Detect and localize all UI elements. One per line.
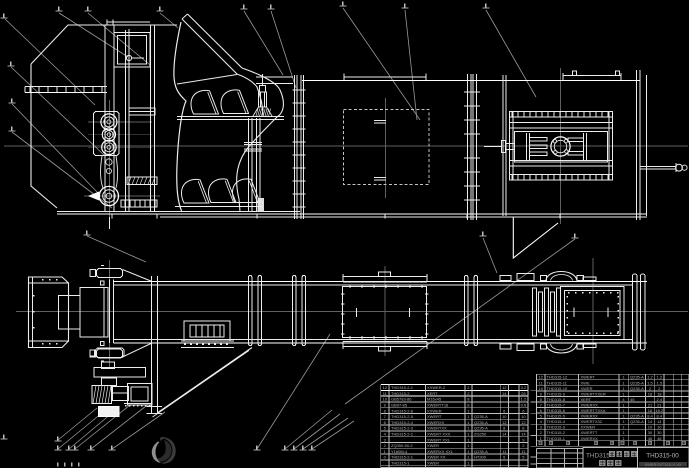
- svg-text:THD315-5: THD315-5: [547, 414, 566, 419]
- svg-text:28: 28: [521, 391, 526, 396]
- svg-text:14: 14: [657, 419, 662, 424]
- svg-text:10: 10: [538, 386, 543, 391]
- svg-text:XWERT XXX: XWERT XXX: [427, 432, 451, 437]
- svg-text:XERT: XERT: [427, 391, 438, 396]
- svg-text:8.4: 8.4: [657, 414, 663, 419]
- svg-text:ZG250: ZG250: [474, 432, 487, 437]
- svg-text:ZQ350-50-2: ZQ350-50-2: [391, 443, 413, 448]
- svg-text:XXWER: XXWER: [427, 408, 442, 413]
- svg-text:1.2: 1.2: [521, 397, 527, 402]
- svg-text:18: 18: [657, 391, 662, 396]
- svg-text:XWERXX: XWERXX: [427, 420, 445, 425]
- svg-text:12: 12: [383, 385, 388, 390]
- svg-text:16: 16: [648, 408, 653, 413]
- svg-text:M16x45: M16x45: [427, 397, 442, 402]
- svg-text:14: 14: [502, 432, 507, 437]
- svg-text:XWER: XWER: [427, 443, 439, 448]
- svg-text:XWE: XWE: [581, 380, 590, 385]
- svg-text:14: 14: [648, 419, 653, 424]
- svg-text:18: 18: [648, 391, 653, 396]
- svg-text:THD315-3: THD315-3: [547, 425, 566, 430]
- svg-text:XWER XX: XWER XX: [427, 455, 446, 460]
- svg-text:2.4: 2.4: [657, 397, 663, 402]
- svg-text:GB97-85: GB97-85: [391, 403, 408, 408]
- svg-text:XERT: XERT: [581, 397, 592, 402]
- svg-text:THD315-7: THD315-7: [547, 402, 566, 407]
- svg-text:THD315-4: THD315-4: [547, 419, 566, 424]
- svg-text:10: 10: [657, 425, 662, 430]
- svg-text:THD315-12: THD315-12: [547, 375, 568, 380]
- svg-text:10: 10: [521, 414, 526, 419]
- svg-text:10: 10: [502, 414, 507, 419]
- svg-text:21: 21: [657, 402, 662, 407]
- svg-text:12: 12: [538, 375, 543, 380]
- svg-text:16.2: 16.2: [655, 408, 664, 413]
- svg-text:THD315-2-5: THD315-2-5: [391, 414, 414, 419]
- svg-text:Q235-A: Q235-A: [630, 414, 644, 419]
- svg-text:Q235-A: Q235-A: [630, 386, 644, 391]
- svg-text:XWERXX XXL: XWERXX XXL: [427, 449, 454, 454]
- svg-text:XWERT: XWERT: [581, 375, 596, 380]
- svg-text:XWERXX: XWERXX: [581, 414, 599, 419]
- svg-text:XWERTXXER: XWERTXXER: [581, 391, 606, 396]
- svg-text:THD315-11: THD315-11: [547, 380, 568, 385]
- svg-text:46: 46: [648, 436, 653, 441]
- svg-text:THD315-2-6: THD315-2-6: [391, 408, 414, 413]
- svg-text:XWER: XWER: [427, 461, 439, 466]
- svg-text:THD315-2: THD315-2: [391, 391, 410, 396]
- svg-text:THD315-8: THD315-8: [547, 397, 566, 402]
- svg-text:XWERXX: XWERXX: [581, 402, 599, 407]
- svg-text:XWERT: XWERT: [427, 414, 442, 419]
- svg-text:THD315-2: THD315-2: [547, 430, 566, 435]
- svg-text:THD315-6: THD315-6: [547, 408, 566, 413]
- svg-text:THD315-10: THD315-10: [547, 386, 568, 391]
- svg-text:XWERTT16: XWERTT16: [427, 403, 449, 408]
- svg-text:XWER: XWER: [581, 386, 593, 391]
- svg-text:XWERXX: XWERXX: [581, 436, 599, 441]
- svg-text:8.4: 8.4: [647, 414, 653, 419]
- svg-text:1.5: 1.5: [647, 380, 653, 385]
- svg-text:0.6: 0.6: [521, 403, 527, 408]
- svg-text:3.2: 3.2: [521, 385, 527, 390]
- svg-text:XWERXXT315-X-XX: XWERXXT315-X-XX: [644, 462, 681, 467]
- svg-text:14: 14: [521, 432, 526, 437]
- svg-text:THD315-00: THD315-00: [646, 453, 679, 460]
- svg-text:XWERT XXL: XWERT XXL: [427, 437, 451, 442]
- svg-text:12: 12: [502, 420, 507, 425]
- svg-text:THD315-1: THD315-1: [391, 461, 410, 466]
- svg-text:21: 21: [648, 402, 653, 407]
- svg-text:12: 12: [502, 385, 507, 390]
- svg-text:XWERTX32: XWERTX32: [581, 419, 603, 424]
- svg-text:THD315-2-1: THD315-2-1: [391, 455, 414, 460]
- svg-text:1.2: 1.2: [647, 375, 653, 380]
- svg-text:XWERTT: XWERTT: [581, 430, 598, 435]
- svg-text:Q235-A: Q235-A: [630, 419, 644, 424]
- svg-text:Q235-A: Q235-A: [474, 420, 488, 425]
- svg-text:THD315-2-1: THD315-2-1: [391, 385, 414, 390]
- svg-text:1.5: 1.5: [657, 380, 663, 385]
- svg-text:XXWER: XXWER: [581, 425, 596, 430]
- svg-text:14: 14: [502, 391, 507, 396]
- svg-text:30: 30: [648, 430, 653, 435]
- svg-text:10: 10: [648, 425, 653, 430]
- svg-text:Q235-A: Q235-A: [630, 375, 644, 380]
- svg-text:GB5783-86: GB5783-86: [391, 397, 412, 402]
- svg-text:XXWER-2: XXWER-2: [427, 385, 446, 390]
- svg-text:12: 12: [521, 420, 526, 425]
- svg-text:Q235-A: Q235-A: [630, 380, 644, 385]
- svg-text:XWERTXX: XWERTXX: [427, 426, 447, 431]
- svg-text:Q235-A: Q235-A: [474, 426, 488, 431]
- svg-text:Q235-A: Q235-A: [474, 414, 488, 419]
- svg-text:30: 30: [657, 430, 662, 435]
- svg-text:HT200: HT200: [474, 455, 487, 460]
- svg-text:THD315: THD315: [586, 452, 610, 459]
- svg-text:45: 45: [630, 397, 635, 402]
- svg-text:THD315-1: THD315-1: [547, 436, 566, 441]
- svg-text:46: 46: [657, 436, 662, 441]
- svg-text:XWERTTXXA: XWERTTXXA: [581, 408, 606, 413]
- svg-text:Y160M-4: Y160M-4: [391, 449, 408, 454]
- svg-text:THD315-9: THD315-9: [547, 391, 566, 396]
- svg-text:THD315-2-3: THD315-2-3: [391, 426, 414, 431]
- svg-text:1.2: 1.2: [657, 375, 663, 380]
- svg-text:THD315-2-4: THD315-2-4: [391, 420, 414, 425]
- svg-text:10: 10: [383, 397, 388, 402]
- svg-text:Q235-A: Q235-A: [474, 449, 488, 454]
- svg-text:THD315-2-2: THD315-2-2: [391, 432, 414, 437]
